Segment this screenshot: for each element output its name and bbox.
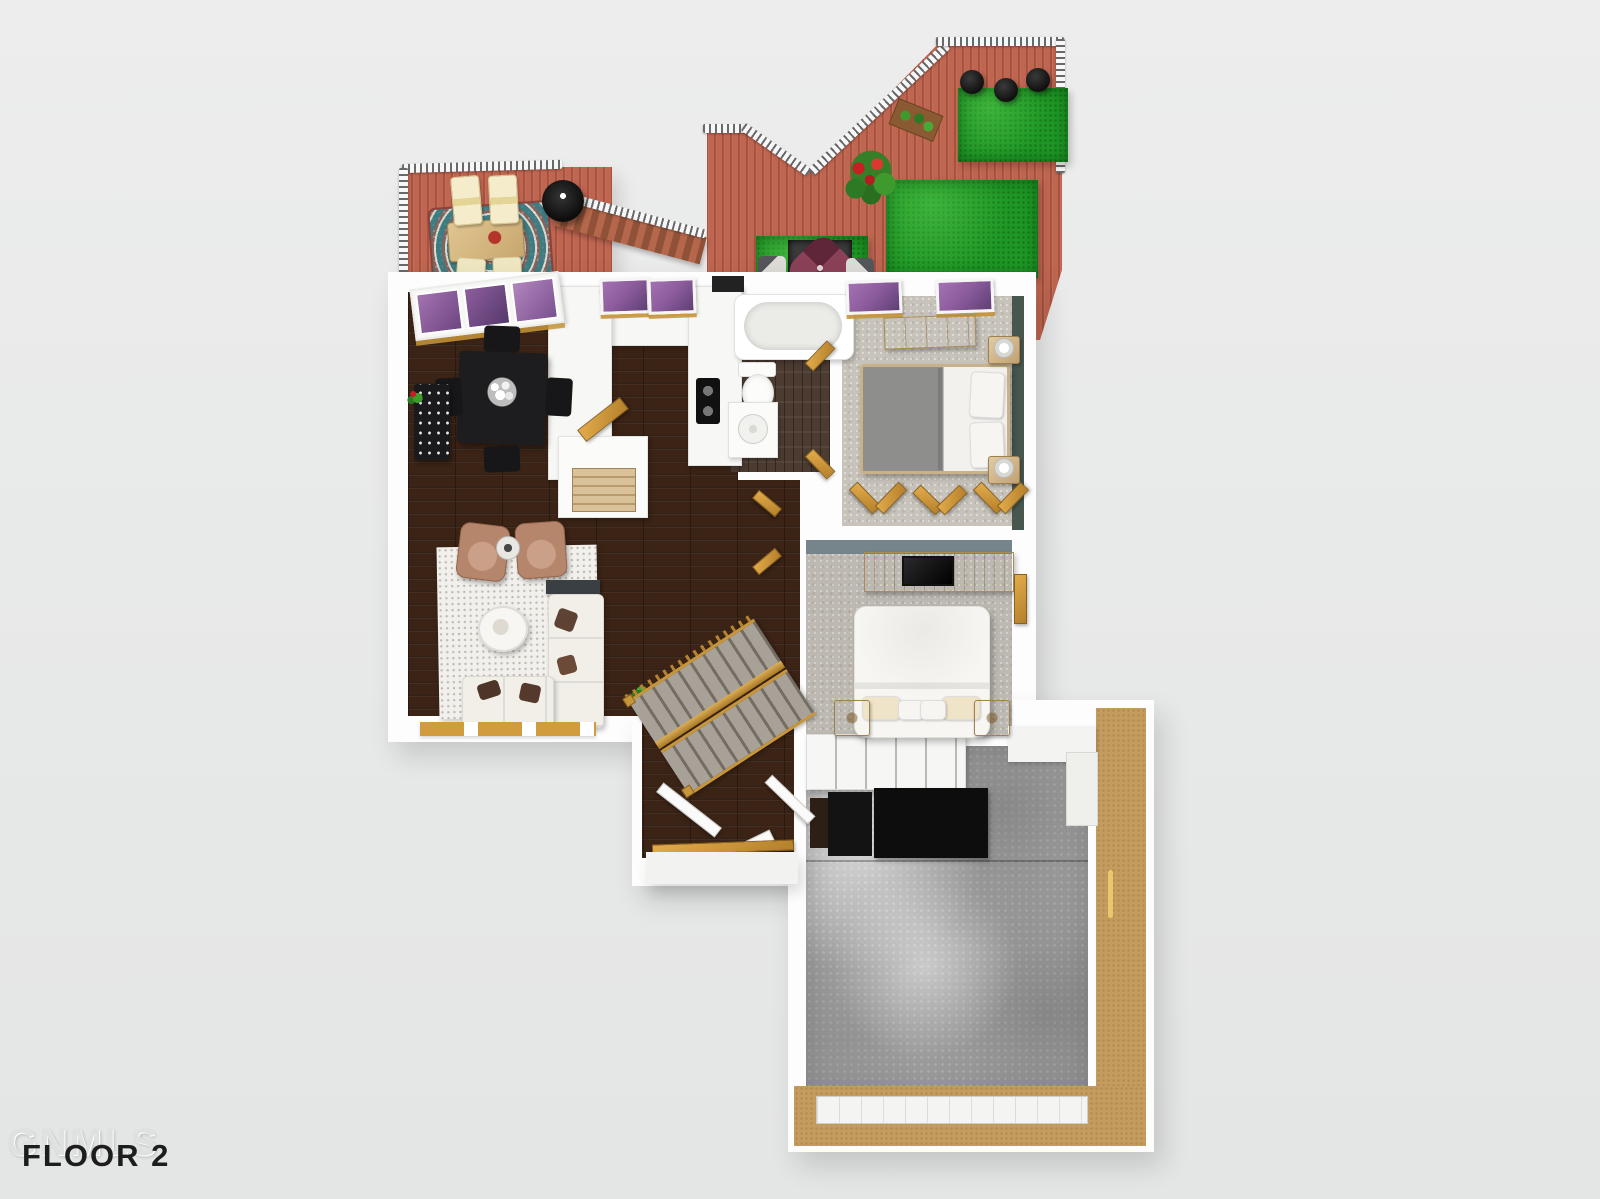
garage-door (816, 1096, 1088, 1124)
glass-panel (510, 277, 559, 324)
glass-panel (415, 288, 464, 335)
dining-chair (484, 325, 521, 352)
garage-floor-joint (806, 860, 1088, 862)
nightstand-lamp (994, 458, 1014, 478)
living-window-sill-band (420, 722, 596, 736)
bedroom2-nightstand (974, 700, 1010, 736)
bedroom1-window (935, 278, 994, 314)
bed1-pillow (969, 371, 1005, 419)
outdoor-lounge-chair (488, 174, 520, 224)
entry-stoop (646, 852, 798, 884)
dining-chair (484, 445, 521, 472)
garage-door-handle-slot (1108, 870, 1113, 918)
garage-side-step (1066, 752, 1098, 826)
bed1-blanket-fold (938, 368, 942, 470)
vanity-sink (738, 414, 768, 444)
sofa-pillow (518, 682, 541, 704)
bedroom1-window (845, 279, 902, 315)
coffee-table (478, 606, 528, 652)
kitchen-window (647, 277, 696, 315)
patio-chair (1026, 68, 1050, 92)
bbq-grill (542, 180, 584, 222)
bar-plant-sprig (406, 386, 424, 406)
deck-flower-bush (840, 148, 902, 206)
floor-lamp (496, 536, 520, 560)
patio-chair (960, 70, 984, 94)
bedroom2-nightstand (834, 700, 870, 736)
bedroom2-tv (902, 556, 954, 586)
stairs-down-opening (572, 468, 636, 512)
bed2-pillow (920, 700, 946, 720)
garage-cabinets (806, 734, 966, 790)
nightstand-lamp (994, 338, 1014, 358)
garage-right-wall (1096, 708, 1146, 1144)
outdoor-lounge-chair (450, 175, 483, 226)
cooktop (696, 378, 720, 424)
deck-turf-large (886, 180, 1038, 278)
patio-chair (994, 78, 1018, 102)
glass-panel (463, 282, 512, 329)
deck-top-railing (936, 37, 1064, 46)
kitchen-window (599, 277, 650, 315)
floorplan-3d-render: GNMLS FLOOR 2 (0, 0, 1600, 1199)
floor-label: FLOOR 2 (22, 1138, 170, 1174)
armchair (514, 520, 568, 579)
garage-shelf-dark (810, 798, 828, 848)
bathroom-window-dark (712, 276, 744, 292)
bedroom2-door (1014, 574, 1027, 624)
bedroom1-dresser (883, 314, 976, 349)
tv-console (546, 580, 600, 594)
table-centerpiece-flowers (484, 376, 520, 408)
dining-chair (545, 377, 573, 416)
garage-mat-small (828, 792, 872, 856)
garage-mat-large (874, 788, 988, 858)
